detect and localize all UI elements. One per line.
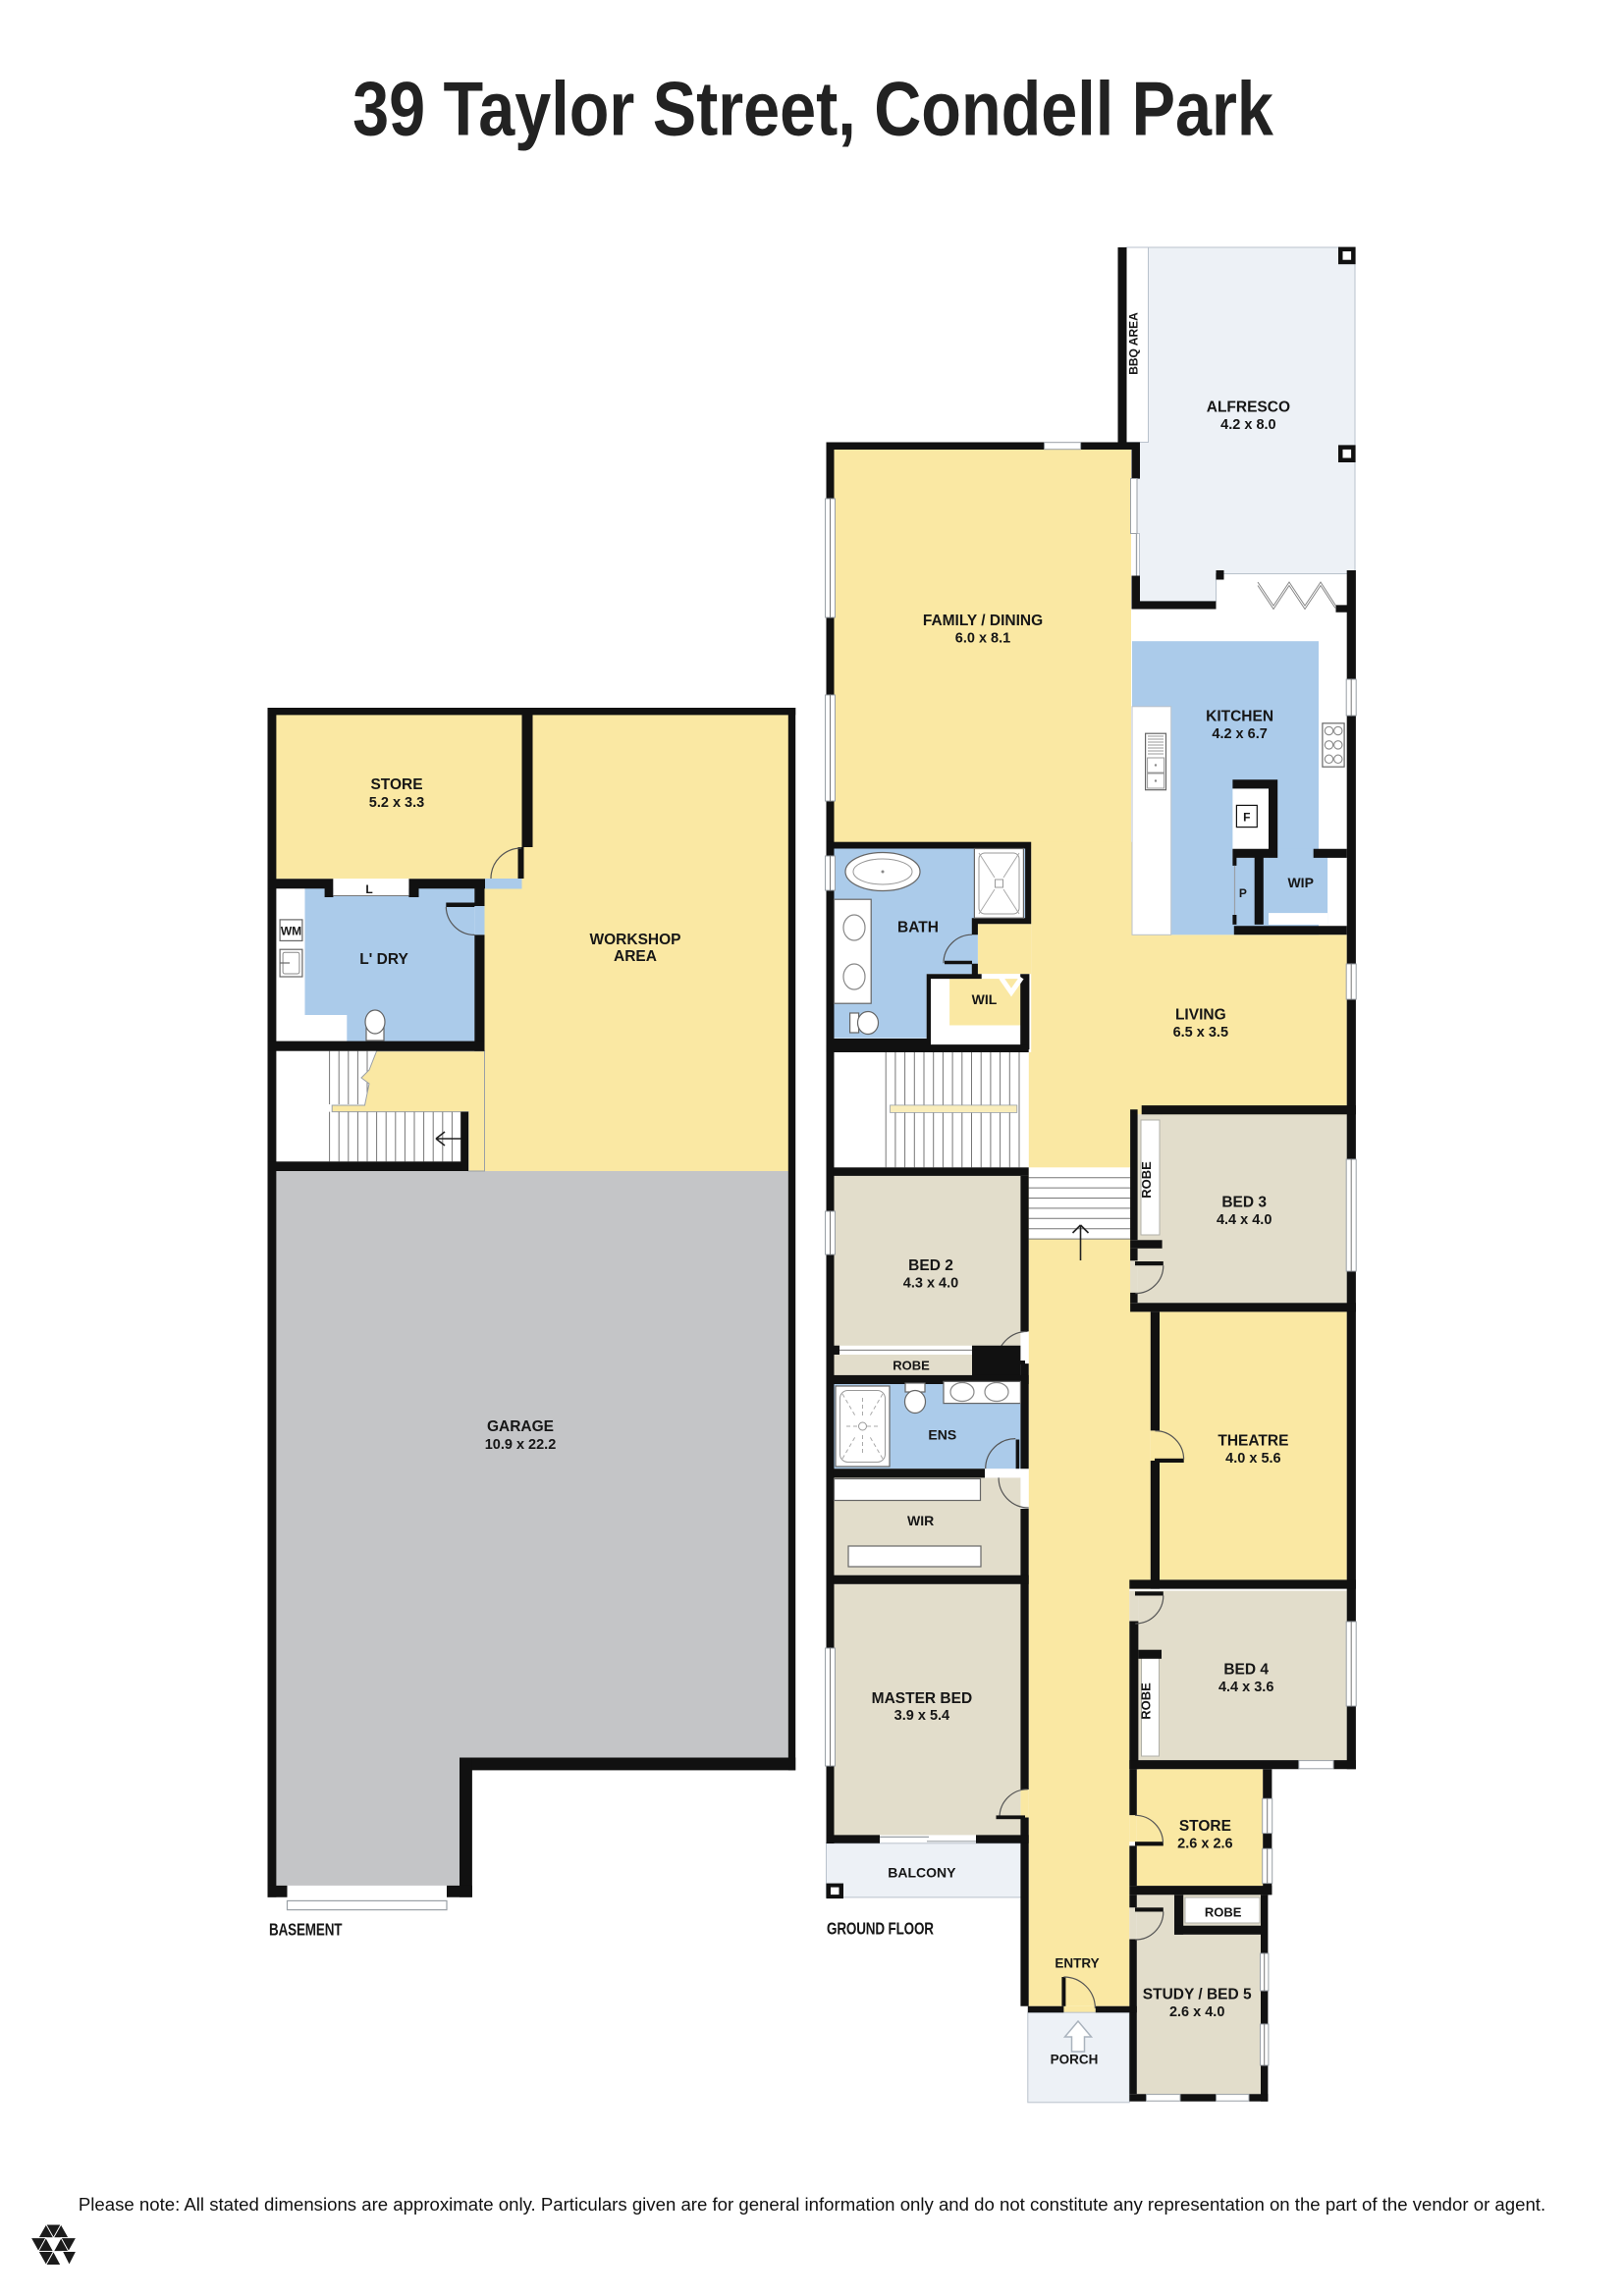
svg-text:6.5 x 3.5: 6.5 x 3.5 [1173,1025,1228,1041]
svg-text:ROBE: ROBE [1139,1682,1154,1720]
svg-text:FAMILY / DINING: FAMILY / DINING [923,613,1043,629]
svg-text:ROBE: ROBE [1205,1905,1242,1920]
svg-text:4.0 x 5.6: 4.0 x 5.6 [1225,1451,1280,1467]
svg-text:2.6 x 4.0: 2.6 x 4.0 [1169,2004,1224,2020]
svg-text:4.4 x 4.0: 4.4 x 4.0 [1217,1212,1272,1228]
svg-text:BATH: BATH [897,920,939,936]
svg-text:THEATRE: THEATRE [1218,1433,1288,1450]
svg-text:GARAGE: GARAGE [487,1418,554,1435]
svg-text:10.9 x 22.2: 10.9 x 22.2 [485,1437,557,1453]
svg-text:STORE: STORE [370,776,422,793]
svg-text:WM: WM [281,925,301,938]
svg-text:39 Taylor Street, Condell Park: 39 Taylor Street, Condell Park [352,67,1273,152]
svg-text:BASEMENT: BASEMENT [269,1921,343,1940]
svg-text:AREA: AREA [614,948,657,965]
svg-text:3.9 x 5.4: 3.9 x 5.4 [894,1708,949,1724]
svg-text:2.6 x 2.6: 2.6 x 2.6 [1177,1837,1232,1852]
svg-text:Please note: All stated dimens: Please note: All stated dimensions are a… [79,2194,1545,2215]
svg-text:GROUND FLOOR: GROUND FLOOR [827,1920,934,1939]
svg-text:4.2 x 6.7: 4.2 x 6.7 [1212,726,1267,742]
svg-text:STUDY / BED 5: STUDY / BED 5 [1143,1987,1252,2003]
svg-text:ROBE: ROBE [893,1359,930,1373]
svg-text:KITCHEN: KITCHEN [1206,709,1273,725]
svg-text:6.0 x 8.1: 6.0 x 8.1 [955,631,1010,647]
svg-text:P: P [1239,886,1247,900]
svg-text:ENS: ENS [928,1427,956,1443]
svg-text:BBQ AREA: BBQ AREA [1127,312,1141,375]
svg-text:WIP: WIP [1287,875,1313,890]
svg-text:4.4 x 3.6: 4.4 x 3.6 [1218,1680,1273,1695]
svg-text:PORCH: PORCH [1051,2053,1099,2067]
svg-text:4.3 x 4.0: 4.3 x 4.0 [903,1276,958,1292]
svg-text:BED 3: BED 3 [1221,1195,1267,1211]
svg-text:LIVING: LIVING [1175,1007,1226,1024]
svg-text:ENTRY: ENTRY [1055,1956,1099,1971]
svg-text:WIL: WIL [972,991,998,1007]
svg-text:WORKSHOP: WORKSHOP [590,932,681,948]
svg-text:F: F [1243,811,1250,825]
svg-text:5.2 x 3.3: 5.2 x 3.3 [369,795,424,811]
svg-text:BALCONY: BALCONY [888,1865,956,1881]
svg-text:L' DRY: L' DRY [359,951,408,968]
svg-text:WIR: WIR [907,1513,934,1528]
svg-text:STORE: STORE [1179,1818,1231,1835]
svg-text:ROBE: ROBE [1139,1161,1154,1199]
svg-text:BED 2: BED 2 [908,1257,953,1274]
svg-text:L: L [365,882,372,896]
svg-text:4.2 x 8.0: 4.2 x 8.0 [1220,417,1275,433]
svg-text:MASTER BED: MASTER BED [872,1690,972,1707]
svg-text:ALFRESCO: ALFRESCO [1207,400,1290,416]
svg-text:BED 4: BED 4 [1223,1662,1269,1679]
